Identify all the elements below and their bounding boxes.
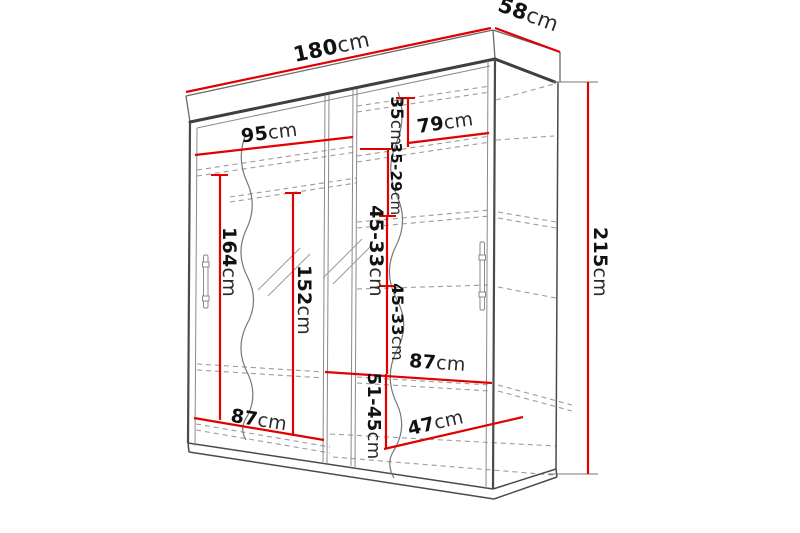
side-back-edge (556, 82, 558, 469)
right-door-handle-bracket (479, 255, 486, 260)
gap4-label: 45-33cm (388, 283, 407, 361)
floor-line (196, 430, 330, 453)
right-door-handle-bracket (479, 292, 486, 297)
mirror-wave-left (241, 134, 254, 440)
interior-depth-label: 47cm (406, 406, 466, 440)
shelf-line (357, 86, 490, 106)
depth-line (498, 218, 556, 228)
right-shelf-width-label: 87cm (408, 350, 466, 376)
floor-back-line (333, 457, 553, 475)
right-door-left-edge (355, 89, 357, 467)
wardrobe-dimension-diagram: 180cm 58cm 215cm 95cm 79cm 35cm 35-29cm … (0, 0, 800, 533)
plinth-bottom-edge (189, 452, 494, 499)
side-plinth-edge (494, 477, 557, 499)
depth-line (496, 84, 554, 100)
interior-height-label: 152cm (293, 265, 315, 335)
diagram-svg: 180cm 58cm 215cm 95cm 79cm 35cm 35-29cm … (0, 0, 800, 533)
right-door-handle (480, 242, 485, 310)
mirror-height-label: 164cm (218, 227, 240, 297)
shelf-line (197, 152, 356, 176)
plinth-left-edge (188, 443, 189, 452)
shelf-line (197, 146, 356, 170)
side-bottom-edge (493, 469, 556, 489)
gap5-label: 51-45cm (363, 372, 384, 459)
door-partition-edge (327, 95, 329, 463)
gap3-label: 45-33cm (365, 205, 387, 297)
front-left-edge (188, 122, 190, 443)
gap2-label: 35-29cm (387, 143, 405, 216)
depth-line (496, 136, 554, 140)
crown-left-edge (186, 96, 190, 122)
depth-line (498, 391, 572, 411)
shelf-line (357, 142, 490, 162)
front-bottom-edge (188, 443, 493, 489)
front-right-inner-edge (486, 61, 488, 488)
depth-line (498, 287, 556, 298)
left-door-handle-bracket (203, 296, 210, 301)
depth-line (498, 385, 572, 405)
depth-line (498, 212, 556, 222)
side-back-lower-edge (556, 469, 557, 477)
right-section-width-label: 79cm (416, 108, 475, 138)
right-shelf-width-dim-line (325, 372, 492, 383)
dimension-labels: 180cm 58cm 215cm 95cm 79cm 35cm 35-29cm … (218, 0, 611, 460)
left-door-handle-bracket (203, 262, 210, 267)
side-top-edge (495, 59, 555, 82)
shelf-line (357, 136, 490, 156)
overall-height-label: 215cm (589, 227, 611, 297)
bottom-left-width-label: 87cm (229, 405, 288, 436)
front-left-inner-edge (195, 128, 197, 446)
crown-right-edge (493, 30, 495, 59)
top-gap-label: 35cm (387, 96, 406, 145)
